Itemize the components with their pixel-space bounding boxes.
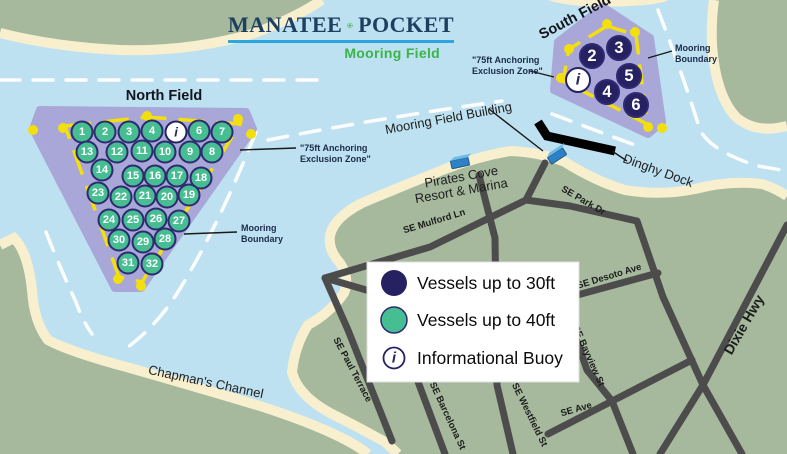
buoy-number: 8 <box>209 146 215 158</box>
buoy-number: 29 <box>137 236 149 248</box>
buoy-number: 13 <box>81 146 93 158</box>
buoy-number: 30 <box>113 234 125 246</box>
buoy-number: 21 <box>139 190 151 202</box>
buoy-number: 25 <box>127 214 139 226</box>
boundary-marker-dot <box>142 111 152 121</box>
buoy-number: 22 <box>115 191 127 203</box>
north-boundary-label-line1: Mooring <box>241 223 277 233</box>
compass-icon <box>347 15 353 36</box>
title-word-manatee: MANATEE <box>228 12 342 38</box>
buoy-number: 23 <box>92 187 104 199</box>
buoy-number: 28 <box>159 233 171 245</box>
buoy-number: 2 <box>102 126 108 138</box>
south-exclusion-label-line2: Exclusion Zone" <box>472 66 543 76</box>
legend-item-30ft: Vessels up to 30ft <box>417 273 555 293</box>
buoy-number: 3 <box>126 126 132 138</box>
buoy-number: 10 <box>159 146 171 158</box>
south-exclusion-label-line1: "75ft Anchoring <box>472 55 539 65</box>
boundary-marker-dot <box>556 73 566 83</box>
buoy-number: 1 <box>79 126 85 138</box>
buoy-number: 11 <box>136 145 148 157</box>
boundary-marker-dot <box>136 281 146 291</box>
boundary-marker-dot <box>246 129 256 139</box>
south-boundary-label-line1: Mooring <box>675 43 711 53</box>
info-buoy-glyph: i <box>174 125 178 140</box>
boundary-marker-dot <box>233 114 243 124</box>
buoy-number: 12 <box>111 146 123 158</box>
buoy-number: 6 <box>631 96 640 114</box>
legend-item-40ft: Vessels up to 40ft <box>417 310 555 330</box>
map-title: MANATEE POCKET Mooring Field <box>228 12 454 61</box>
buoy-number: 18 <box>195 172 207 184</box>
buoy-number: 32 <box>146 258 158 270</box>
buoy-number: 15 <box>127 170 139 182</box>
buoy-number: 16 <box>149 170 161 182</box>
legend-item-info: Informational Buoy <box>417 348 563 368</box>
boundary-marker-dot <box>602 19 612 29</box>
buoy-number: 14 <box>96 164 109 176</box>
buoy-number: 17 <box>171 170 183 182</box>
buoy-number: 2 <box>587 47 596 65</box>
north-exclusion-label-line1: "75ft Anchoring <box>300 143 367 153</box>
title-underline <box>228 40 454 43</box>
title-subtitle: Mooring Field <box>228 45 454 61</box>
legend-green-circle-icon <box>381 307 407 333</box>
north-field-label: North Field <box>126 88 203 104</box>
buoy-number: 24 <box>103 214 116 226</box>
buoy-number: 4 <box>149 125 156 137</box>
boundary-marker-dot <box>28 125 38 135</box>
boundary-marker-dot <box>643 122 653 132</box>
buoy-number: 31 <box>122 257 134 269</box>
boundary-marker-dot <box>58 123 68 133</box>
boundary-marker-dot <box>564 44 574 54</box>
buoy-number: 26 <box>150 213 162 225</box>
legend: i Vessels up to 30ft Vessels up to 40ft … <box>367 262 579 382</box>
buoy-number: 4 <box>602 83 612 101</box>
buoy-number: 6 <box>196 125 202 137</box>
title-word-pocket: POCKET <box>358 12 454 38</box>
buoy-number: 20 <box>161 191 173 203</box>
buoy-number: 7 <box>219 126 225 138</box>
info-buoy-glyph: i <box>576 72 581 89</box>
map-title-row: MANATEE POCKET <box>228 12 454 38</box>
map-canvas: SE Mulford Ln SE Park Dr SE Desoto Ave S… <box>0 0 787 454</box>
boundary-marker-dot <box>657 123 667 133</box>
buoy-number: 5 <box>624 67 633 85</box>
boundary-marker-dot <box>630 27 640 37</box>
north-boundary-label-line2: Boundary <box>241 234 283 244</box>
buoy-number: 3 <box>614 39 623 57</box>
buoy-number: 27 <box>173 215 185 227</box>
legend-navy-circle-icon <box>381 270 407 296</box>
boundary-marker-dot <box>113 274 123 284</box>
buoy-number: 9 <box>187 146 193 158</box>
north-exclusion-label-line2: Exclusion Zone" <box>300 154 371 164</box>
buoy-number: 19 <box>183 189 195 201</box>
south-boundary-label-line2: Boundary <box>675 54 717 64</box>
mooring-field-map: SE Mulford Ln SE Park Dr SE Desoto Ave S… <box>0 0 787 454</box>
